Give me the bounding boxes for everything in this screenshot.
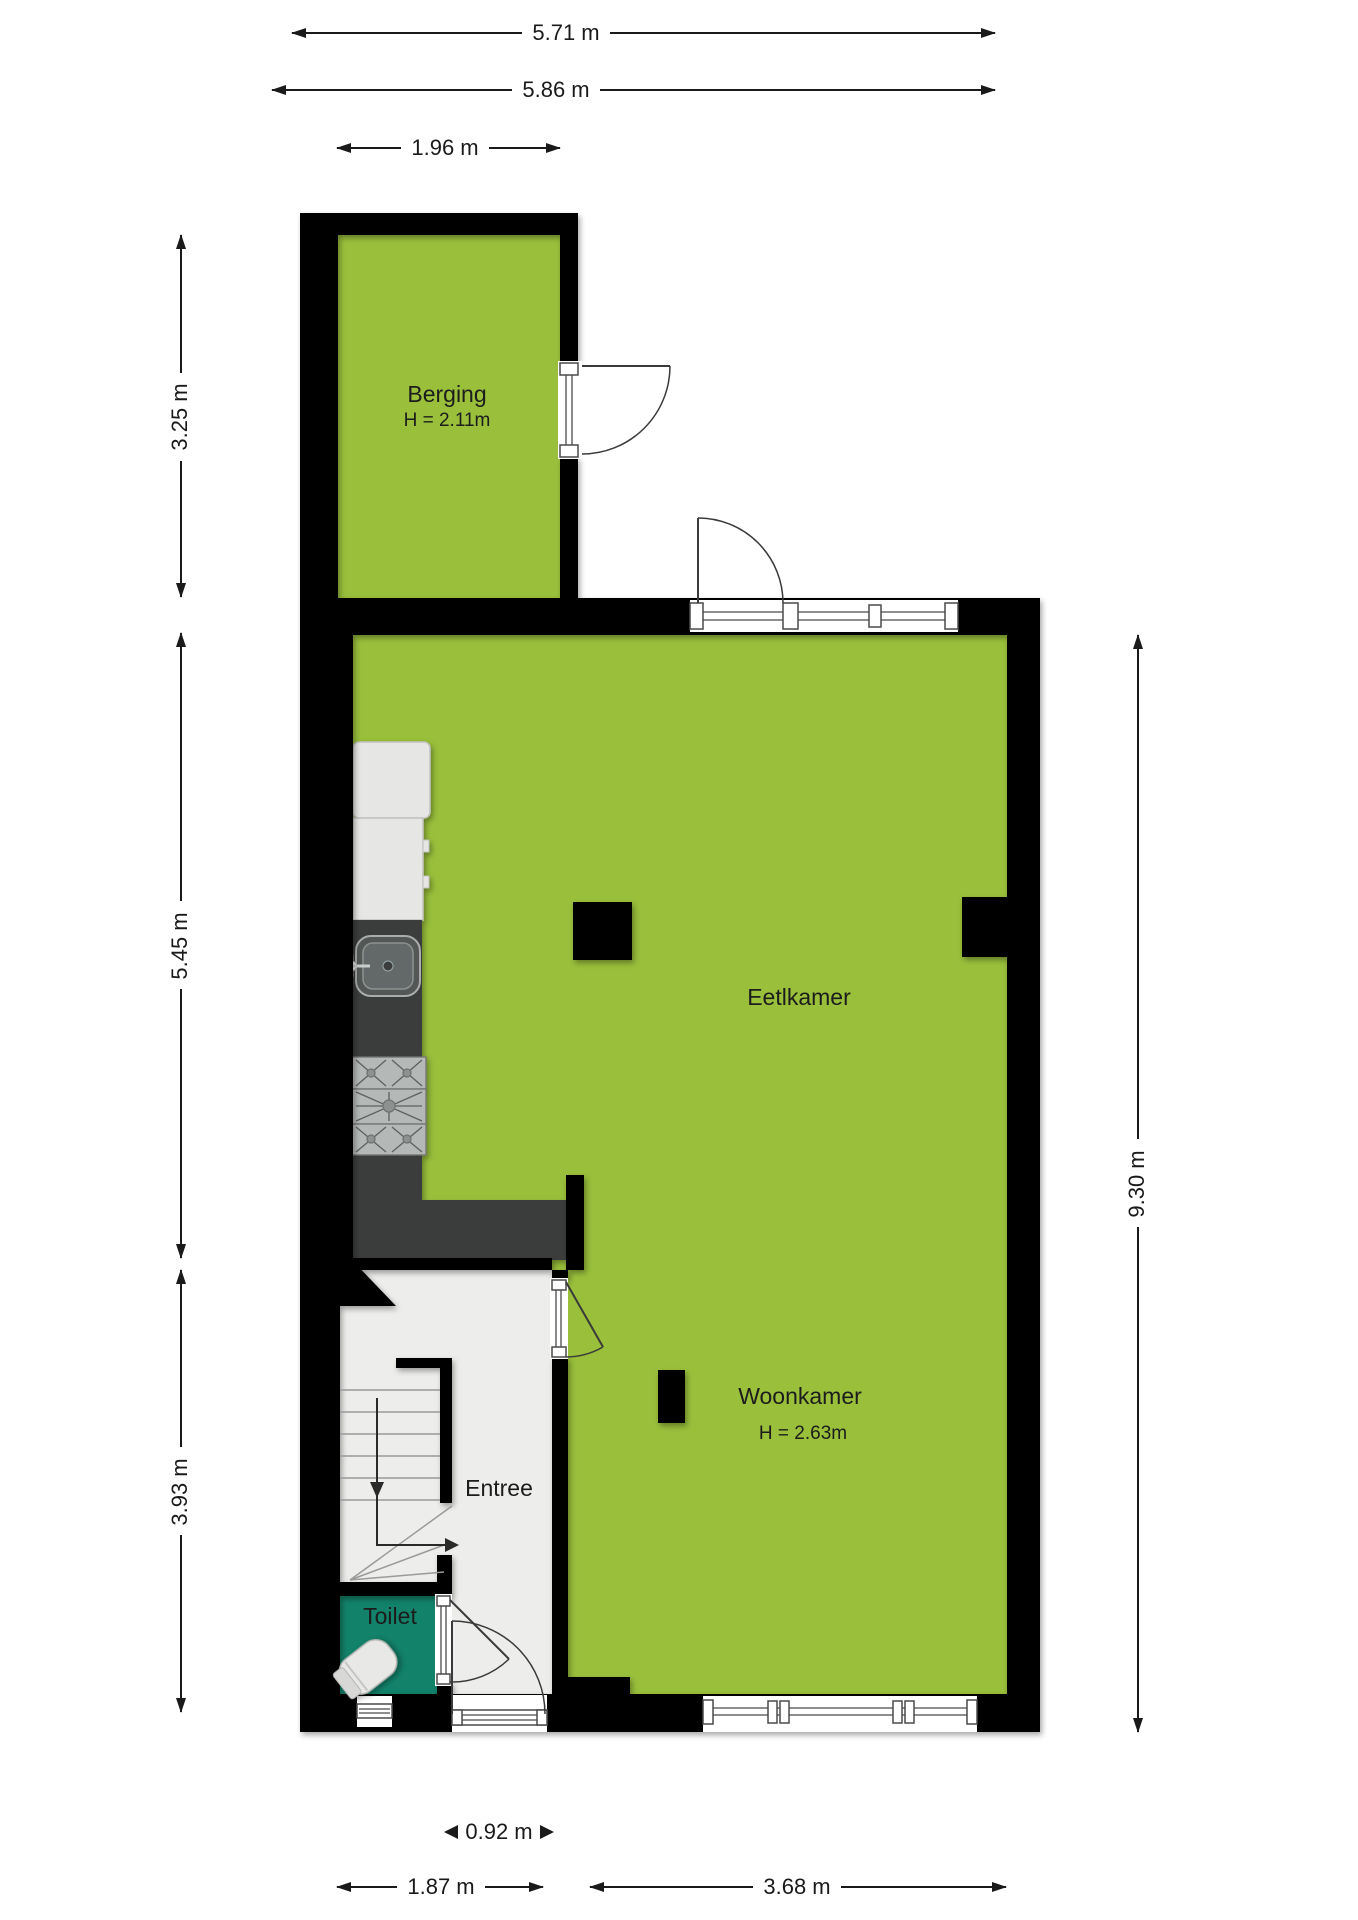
pillar-living (658, 1370, 685, 1423)
stove-icon (352, 1057, 426, 1155)
wall-berging-top (300, 213, 578, 235)
cabinet-handle (423, 876, 429, 888)
dim-value: 9.30 m (1124, 1150, 1149, 1217)
window-frame (783, 603, 798, 629)
dim-value: 3.93 m (167, 1458, 192, 1525)
pillar-dining (573, 902, 632, 960)
dim-value: 1.96 m (411, 135, 478, 160)
kitchen-cabinet (353, 742, 430, 818)
berging-height-label: H = 2.11m (404, 410, 491, 431)
window-frame (690, 603, 703, 629)
kitchen-cabinet (353, 818, 423, 920)
wall-berging-left (300, 213, 338, 598)
wall-under-counter (340, 1258, 552, 1270)
wall-house-right (1007, 635, 1040, 1732)
living-room-window (703, 1696, 977, 1732)
wall-bottom-step (566, 1677, 630, 1694)
wall-stairs-right-lower (437, 1555, 452, 1582)
dim-value: 1.87 m (407, 1874, 474, 1899)
wall-stairs-top (396, 1358, 452, 1368)
wall-berging-right (560, 235, 578, 363)
window-mullion (869, 605, 881, 627)
cabinet-handle (423, 840, 429, 852)
dim-value: 0.92 m (465, 1819, 532, 1844)
entree-label: Entree (465, 1475, 533, 1501)
wall-right-notch (962, 897, 1007, 957)
dim-value: 3.68 m (763, 1874, 830, 1899)
window-frame (945, 603, 958, 629)
woonkamer-height-label: H = 2.63m (759, 1423, 847, 1444)
wall-berging-right (560, 457, 578, 598)
toilet-label: Toilet (363, 1603, 417, 1629)
wall-stairs-right (440, 1358, 452, 1503)
dim-value: 5.86 m (522, 77, 589, 102)
wall-house-left (300, 635, 353, 1260)
wall-house-left-lower (300, 1260, 340, 1732)
wall-divider-stub (566, 1175, 584, 1270)
eetkamer-label: Eetlkamer (747, 984, 851, 1010)
toilet-window (357, 1696, 392, 1727)
dim-value: 5.71 m (532, 20, 599, 45)
dim-value: 3.25 m (167, 383, 192, 450)
wall-toilet-top (302, 1582, 452, 1596)
berging-label: Berging (407, 381, 486, 407)
wall-divider (552, 1357, 568, 1694)
floor-plan: Berging H = 2.11m Eetlkamer Woonkamer H … (0, 0, 1358, 1920)
dim-value: 5.45 m (167, 912, 192, 979)
woonkamer-label: Woonkamer (738, 1383, 862, 1409)
